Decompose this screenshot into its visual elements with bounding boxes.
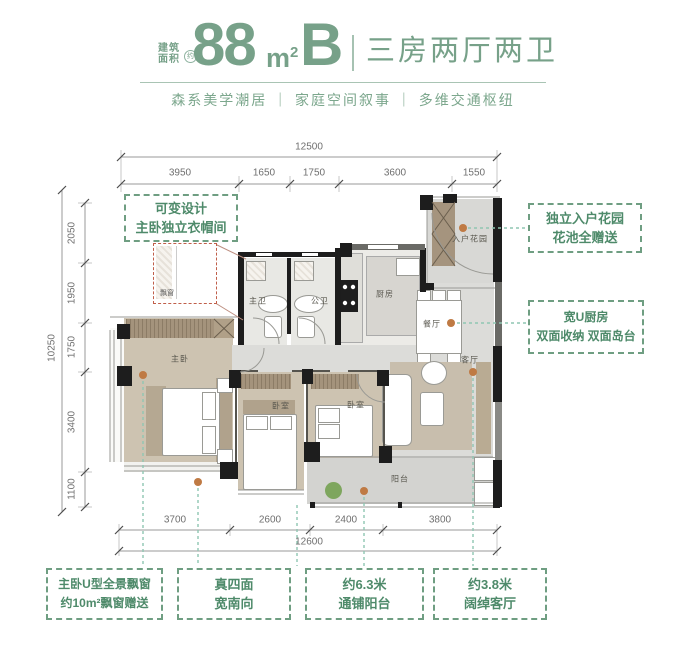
dim-bottom-seg1: 3700 [164,515,186,526]
callout-bay-window: 主卧U型全景飘窗 约10m²飘窗赠送 [46,568,163,620]
callout-line: 宽南向 [179,594,289,613]
room-label-entry-garden: 入户花园 [452,234,488,245]
dim-top-seg5: 1550 [463,168,485,179]
dim-bottom-total: 12600 [295,537,323,548]
anchor-dot-south [194,478,202,486]
room-label-balcony: 阳台 [391,474,409,485]
dim-top-seg1: 3950 [169,168,191,179]
callout-line: 约6.3米 [307,575,422,594]
dim-left-seg3: 1750 [67,336,78,358]
callout-kitchen: 宽U厨房 双面收纳 双面岛台 [528,300,644,354]
callout-line: 约3.8米 [435,575,545,594]
dim-bottom-seg3: 2400 [335,515,357,526]
floorplan-page: 建筑 面积 约 88 m2 B 三房两厅两卫 森系美学潮居 ｜ 家庭空间叙事 ｜… [0,0,686,650]
callout-line: 主卧独立衣帽间 [126,218,236,237]
anchor-dot-garden [459,224,467,232]
callout-line: 约10m²飘窗赠送 [48,594,161,613]
anchor-dot-dining [447,319,455,327]
anchor-dot-balcony [360,487,368,495]
dim-left-total: 10250 [47,334,58,362]
callout-line: 阔绰客厅 [435,594,545,613]
room-label-dining: 餐厅 [423,319,441,330]
anchor-dot-master [139,371,147,379]
callout-variable-design: 可变设计 主卧独立衣帽间 [124,194,238,242]
dim-left-seg2: 1950 [67,282,78,304]
anchor-dot-living [469,368,477,376]
dim-bottom-seg2: 2600 [259,515,281,526]
room-label-living: 客厅 [461,355,479,366]
callout-living-room: 约3.8米 阔绰客厅 [433,568,547,620]
callout-line: 双面收纳 双面岛台 [530,327,642,346]
dim-top-seg2: 1650 [253,168,275,179]
room-label-bed2: 卧室 [272,401,290,412]
dim-left-seg5: 1100 [67,478,78,500]
room-label-bed3: 卧室 [347,400,365,411]
callout-line: 真四面 [179,575,289,594]
callout-line: 通铺阳台 [307,594,422,613]
callout-entry-garden: 独立入户花园 花池全赠送 [528,203,642,253]
callout-balcony: 约6.3米 通铺阳台 [305,568,424,620]
room-label-kitchen: 厨房 [376,289,394,300]
bay-window-inset: 飘窗 [153,243,217,304]
dim-top-total: 12500 [295,142,323,153]
room-label-master: 主卧 [171,354,189,365]
callout-line: 独立入户花园 [530,209,640,228]
dim-left-seg4: 3400 [67,411,78,433]
callout-line: 主卧U型全景飘窗 [48,575,161,594]
callout-south-facing: 真四面 宽南向 [177,568,291,620]
bay-inner-line [176,246,177,299]
dim-top-seg4: 3600 [384,168,406,179]
bay-inset-label: 飘窗 [160,288,174,298]
dim-bottom-seg4: 3800 [429,515,451,526]
callout-line: 花池全赠送 [530,228,640,247]
room-label-bath-public: 公卫 [311,296,329,307]
dim-top-seg3: 1750 [303,168,325,179]
room-label-bath-master: 主卫 [249,296,267,307]
callout-line: 可变设计 [126,199,236,218]
callout-line: 宽U厨房 [530,308,642,327]
dim-left-seg1: 2050 [67,222,78,244]
